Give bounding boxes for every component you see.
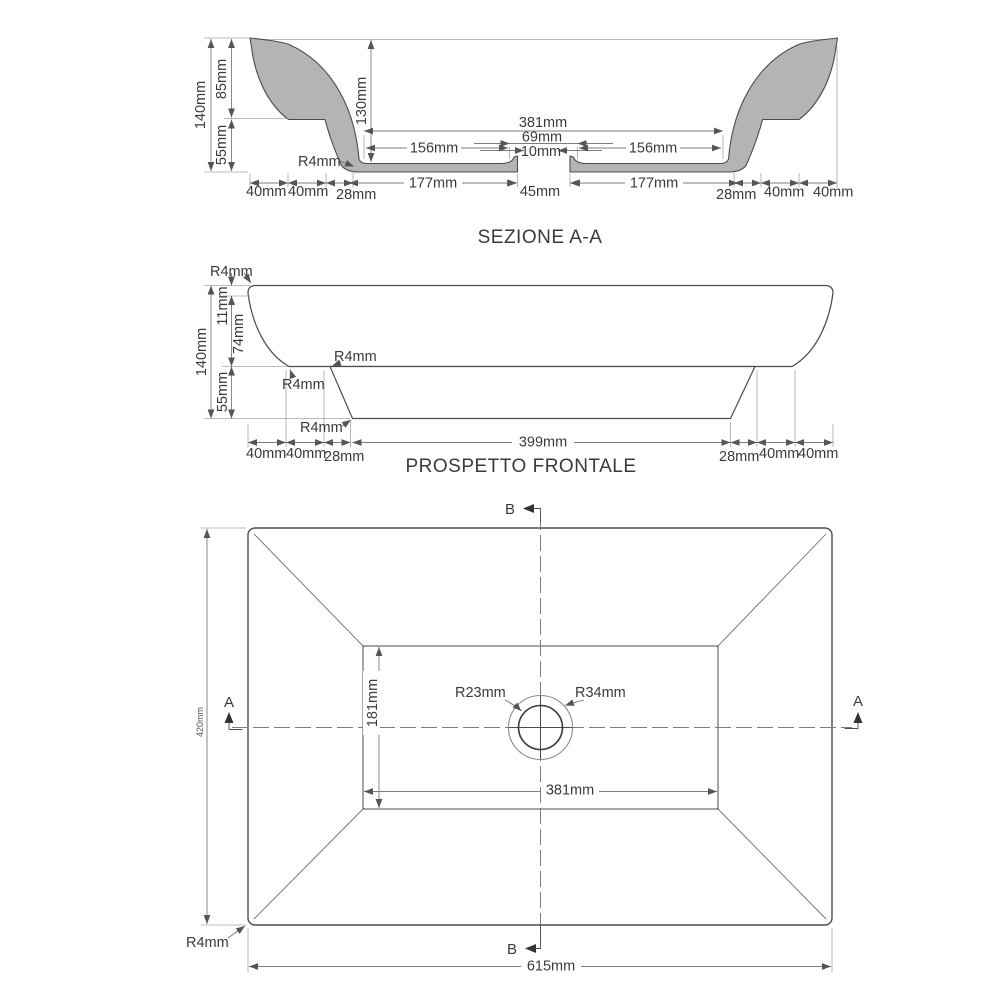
section-dim-140mm: 140mm (193, 81, 209, 129)
b-bottom-arrow-icon (525, 944, 536, 953)
section-dim-40mm-right-b: 40mm (813, 185, 853, 201)
front-dim-55mm: 55mm (215, 372, 231, 412)
section-view: 140mm 85mm 55mm 130mm R4mm 381mm 69mm 10… (193, 38, 853, 248)
front-dim-74mm: 74mm (231, 314, 247, 354)
section-dim-45mm: 45mm (520, 184, 560, 200)
section-dim-156mm-left: 156mm (410, 141, 458, 157)
section-dim-40mm-left-b: 40mm (288, 184, 328, 200)
section-cut-marker-b-bottom: B (507, 925, 541, 958)
front-basin-outline (330, 367, 755, 419)
section-right-wall-profile (570, 38, 838, 172)
a-left-arrow-icon (225, 712, 234, 723)
front-radius-r4mm-corner: R4mm (282, 377, 325, 393)
a-right-label: A (853, 693, 863, 710)
front-dim-28mm-left: 28mm (324, 449, 364, 465)
section-title: SEZIONE A-A (478, 227, 603, 248)
plan-radius-r23mm: R23mm (455, 685, 506, 701)
front-dim-40mm-left-a: 40mm (246, 446, 286, 462)
section-dim-55mm: 55mm (214, 125, 230, 165)
plan-radius-r34mm: R34mm (575, 685, 626, 701)
front-dim-40mm-left-b: 40mm (286, 446, 326, 462)
a-right-arrow-icon (854, 712, 863, 723)
section-dim-156mm-right: 156mm (629, 141, 677, 157)
front-view: R4mm 11mm 74mm 140mm 55mm R4mm R4mm R4mm… (194, 264, 838, 477)
section-cut-marker-a-left: A (224, 694, 242, 730)
section-left-wall-profile (250, 38, 518, 172)
section-cut-marker-a-right: A (845, 693, 863, 729)
section-dim-40mm-left-a: 40mm (246, 184, 286, 200)
section-radius-r4mm: R4mm (298, 154, 341, 170)
b-top-arrow-icon (523, 504, 534, 513)
plan-dim-615mm: 615mm (527, 959, 575, 975)
section-dim-28mm-right: 28mm (716, 187, 756, 203)
b-bottom-label: B (507, 941, 517, 958)
plan-dim-181mm: 181mm (365, 679, 381, 727)
plan-radius-r4mm: R4mm (186, 935, 229, 951)
plan-view: B B A A 420mm 615mm 181mm 381mm R23mm R3… (186, 501, 863, 975)
section-dim-177mm-right: 177mm (630, 176, 678, 192)
front-title: PROSPETTO FRONTALE (405, 456, 636, 477)
section-dim-130mm: 130mm (354, 77, 370, 125)
front-radius-r4mm-ledge: R4mm (334, 349, 377, 365)
front-dim-11mm: 11mm (215, 286, 231, 325)
section-dim-10mm: 10mm (521, 144, 561, 160)
technical-drawing-sheet: 140mm 85mm 55mm 130mm R4mm 381mm 69mm 10… (0, 0, 1000, 1000)
front-dim-140mm: 140mm (194, 328, 210, 376)
washbasin-drawing: 140mm 85mm 55mm 130mm R4mm 381mm 69mm 10… (0, 0, 1000, 1000)
b-top-label: B (505, 501, 515, 518)
front-radius-r4mm-top: R4mm (210, 264, 253, 280)
section-dim-85mm: 85mm (214, 59, 230, 99)
front-dim-40mm-right-a: 40mm (759, 446, 799, 462)
front-radius-r4mm-bottom: R4mm (300, 420, 343, 436)
section-cut-marker-b-top: B (505, 501, 541, 522)
front-dim-28mm-right: 28mm (719, 449, 759, 465)
section-dim-28mm-left: 28mm (336, 187, 376, 203)
section-dim-40mm-right-a: 40mm (764, 185, 804, 201)
front-dim-40mm-right-b: 40mm (798, 446, 838, 462)
plan-dim-381mm: 381mm (546, 783, 594, 799)
a-left-label: A (224, 694, 234, 711)
front-dim-399mm: 399mm (519, 435, 567, 451)
section-dim-177mm-left: 177mm (409, 176, 457, 192)
plan-dim-420mm: 420mm (195, 707, 205, 737)
